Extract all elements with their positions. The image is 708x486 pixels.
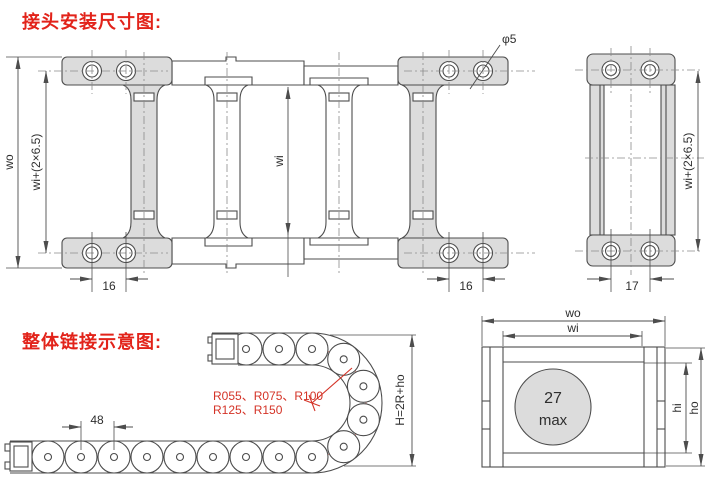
dim-section-hi-label: hi bbox=[670, 403, 684, 412]
dim-pitch-left-label: 16 bbox=[102, 279, 116, 293]
end-view-drawing: wi+(2×6.5) 17 bbox=[575, 46, 704, 293]
dim-hole-dia-label: φ5 bbox=[502, 32, 517, 46]
dim-end-wi-plus-label: wi+(2×6.5) bbox=[681, 133, 695, 191]
plan-view-drawing: wo wi+(2×6.5) wi φ5 16 16 bbox=[2, 32, 535, 293]
dim-wi-label: wi bbox=[272, 155, 286, 167]
technical-drawing: wo wi+(2×6.5) wi φ5 16 16 bbox=[0, 0, 708, 486]
bend-radii-line1: R055、R075、R100 bbox=[213, 389, 323, 403]
drawing-sheet: 接头安装尺寸图: 整体链接示意图: bbox=[0, 0, 708, 486]
chain-end-connector-upper bbox=[208, 334, 238, 364]
dim-wo-label: wo bbox=[2, 154, 16, 171]
bore-value-label: 27 bbox=[544, 390, 562, 407]
dim-wi-plus-label: wi+(2×6.5) bbox=[29, 134, 43, 192]
cable-bore-circle bbox=[515, 369, 591, 445]
bore-max-label: max bbox=[539, 412, 568, 429]
chain-end-connector-lower bbox=[5, 442, 32, 471]
dim-section-ho-label: ho bbox=[687, 401, 701, 415]
bend-view-drawing: R055、R075、R100 R125、R150 48 H=2R+ho bbox=[5, 333, 416, 473]
dim-end-pitch-label: 17 bbox=[625, 279, 639, 293]
dim-height-label: H=2R+ho bbox=[393, 374, 407, 426]
section-view-drawing: 27 max wo wi hi ho bbox=[482, 306, 705, 467]
bend-radii-line2: R125、R150 bbox=[213, 403, 283, 417]
bend-radius-annotation: R055、R075、R100 R125、R150 bbox=[213, 368, 352, 417]
dim-chain-pitch-label: 48 bbox=[90, 413, 104, 427]
dim-pitch-right-label: 16 bbox=[459, 279, 473, 293]
chain-links bbox=[32, 333, 379, 473]
dim-section-wi-label: wi bbox=[566, 321, 578, 335]
dim-section-wo-label: wo bbox=[564, 306, 581, 320]
